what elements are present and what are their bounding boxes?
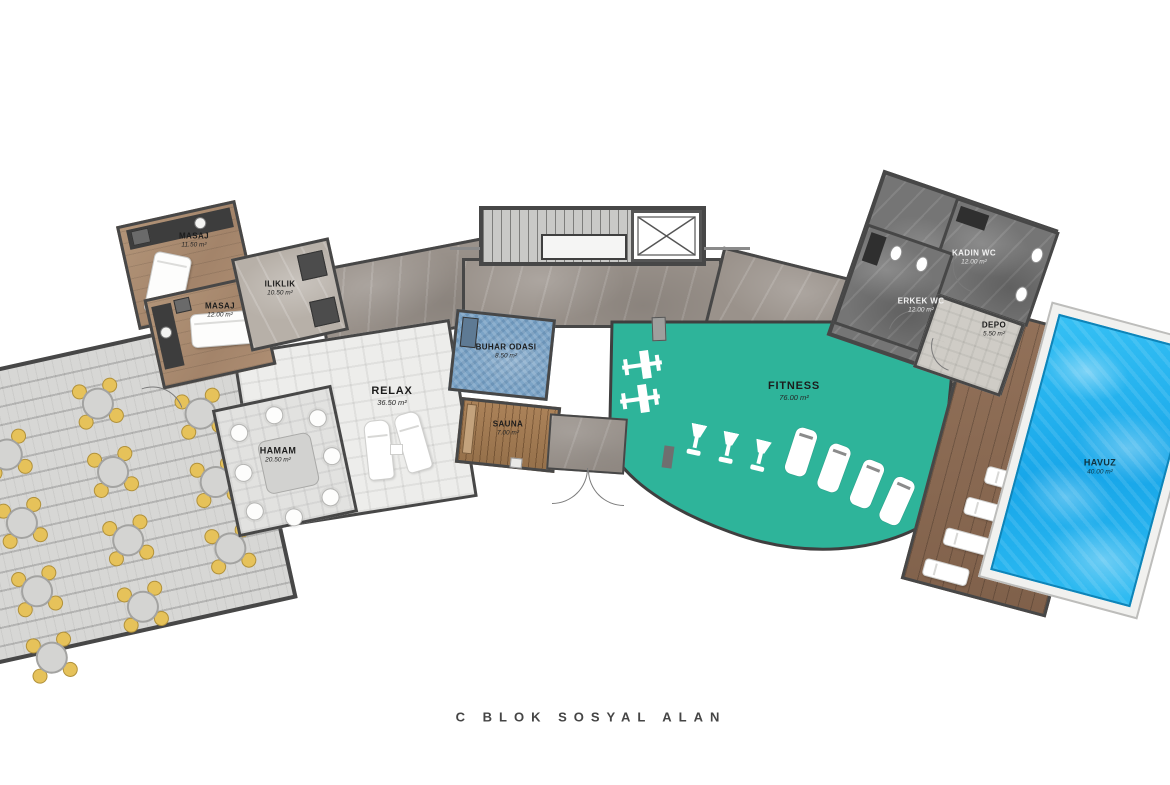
room-area: 10.50 m² [265,289,296,297]
room-label-kadin-wc: KADIN WC 12.00 m² [952,248,996,265]
room-name: FITNESS [768,380,820,393]
erkek-wc-toilet-2 [914,255,931,274]
room-area: 12.00 m² [205,311,235,319]
room-area: 12.00 m² [952,258,996,266]
fitness-bench-press [620,347,664,382]
room-area: 76.00 m² [768,393,820,402]
kadin-wc-counter [956,206,990,231]
entrance-vestibule [546,413,628,474]
kadin-wc-toilet-2 [1013,285,1030,304]
fitness-door-pillar [652,317,667,341]
erkek-wc-counter [862,232,887,266]
hamam-stool [233,462,254,483]
stair-core [479,206,706,266]
room-label-buhar-odasi: BUHAR ODASI 8.50 m² [476,342,537,359]
room-area: 12.00 m² [898,306,945,314]
room-label-masaj-1: MASAJ 11.50 m² [179,231,209,248]
room-area: 11.50 m² [179,241,209,249]
room-name: KADIN WC [952,248,996,258]
relax-side-table [390,444,403,455]
kadin-wc-toilet-1 [1029,246,1046,265]
room-name: BUHAR ODASI [476,342,537,352]
room-label-masaj-2: MASAJ 12.00 m² [205,301,235,318]
room-name: ERKEK WC [898,296,945,306]
room-name: SAUNA [493,419,523,429]
room-name: MASAJ [205,301,235,311]
stair-landing [541,234,627,260]
hamam-stool [321,445,342,466]
plan-caption: C BLOK SOSYAL ALAN [456,710,727,725]
room-label-havuz: HAVUZ 40.00 m² [1084,458,1116,477]
room-label-iliklik: ILIKLIK 10.50 m² [265,279,296,296]
sauna-bench [462,404,477,455]
room-label-depo: DEPO 5.50 m² [982,320,1006,337]
depo-door-arc [924,338,957,371]
floor-plan-canvas: MASAJ 11.50 m² MASAJ 12.00 m² ILIKLIK 10… [0,0,1170,785]
room-label-hamam: HAMAM 20.50 m² [260,446,297,465]
hamam-stool [228,422,249,443]
stair-railing-left [450,247,480,250]
hamam-stool [264,405,285,426]
sauna-door-gap [510,457,523,468]
room-area: 8.50 m² [476,352,537,360]
stair-railing-right [704,247,750,250]
room-area: 40.00 m² [1084,469,1116,477]
fitness-bench-press [618,381,662,416]
room-name: HAMAM [260,446,297,457]
room-name: MASAJ [179,231,209,241]
iliklik-bench-1 [297,250,328,281]
massage2-cabinet [173,297,192,314]
room-name: HAVUZ [1084,458,1116,469]
room-name: ILIKLIK [265,279,296,289]
room-area: 36.50 m² [371,398,412,407]
hamam-stool [307,408,328,429]
iliklik-bench-2 [309,296,340,327]
elevator-x-icon [634,213,699,259]
hamam-stool [244,501,265,522]
room-area: 7.00 m² [493,429,523,437]
room-label-relax: RELAX 36.50 m² [371,385,412,407]
room-area: 5.50 m² [982,330,1006,338]
room-label-erkek-wc: ERKEK WC 12.00 m² [898,296,945,313]
room-name: DEPO [982,320,1006,330]
pool-sunbed [921,558,970,587]
room-label-sauna: SAUNA 7.00 m² [493,419,523,436]
room-area: 20.50 m² [260,457,297,465]
hamam-stool [320,487,341,508]
erkek-wc-toilet-1 [888,244,905,263]
elevator-shaft [631,210,702,262]
room-name: RELAX [371,385,412,398]
room-label-fitness: FITNESS 76.00 m² [768,380,820,402]
